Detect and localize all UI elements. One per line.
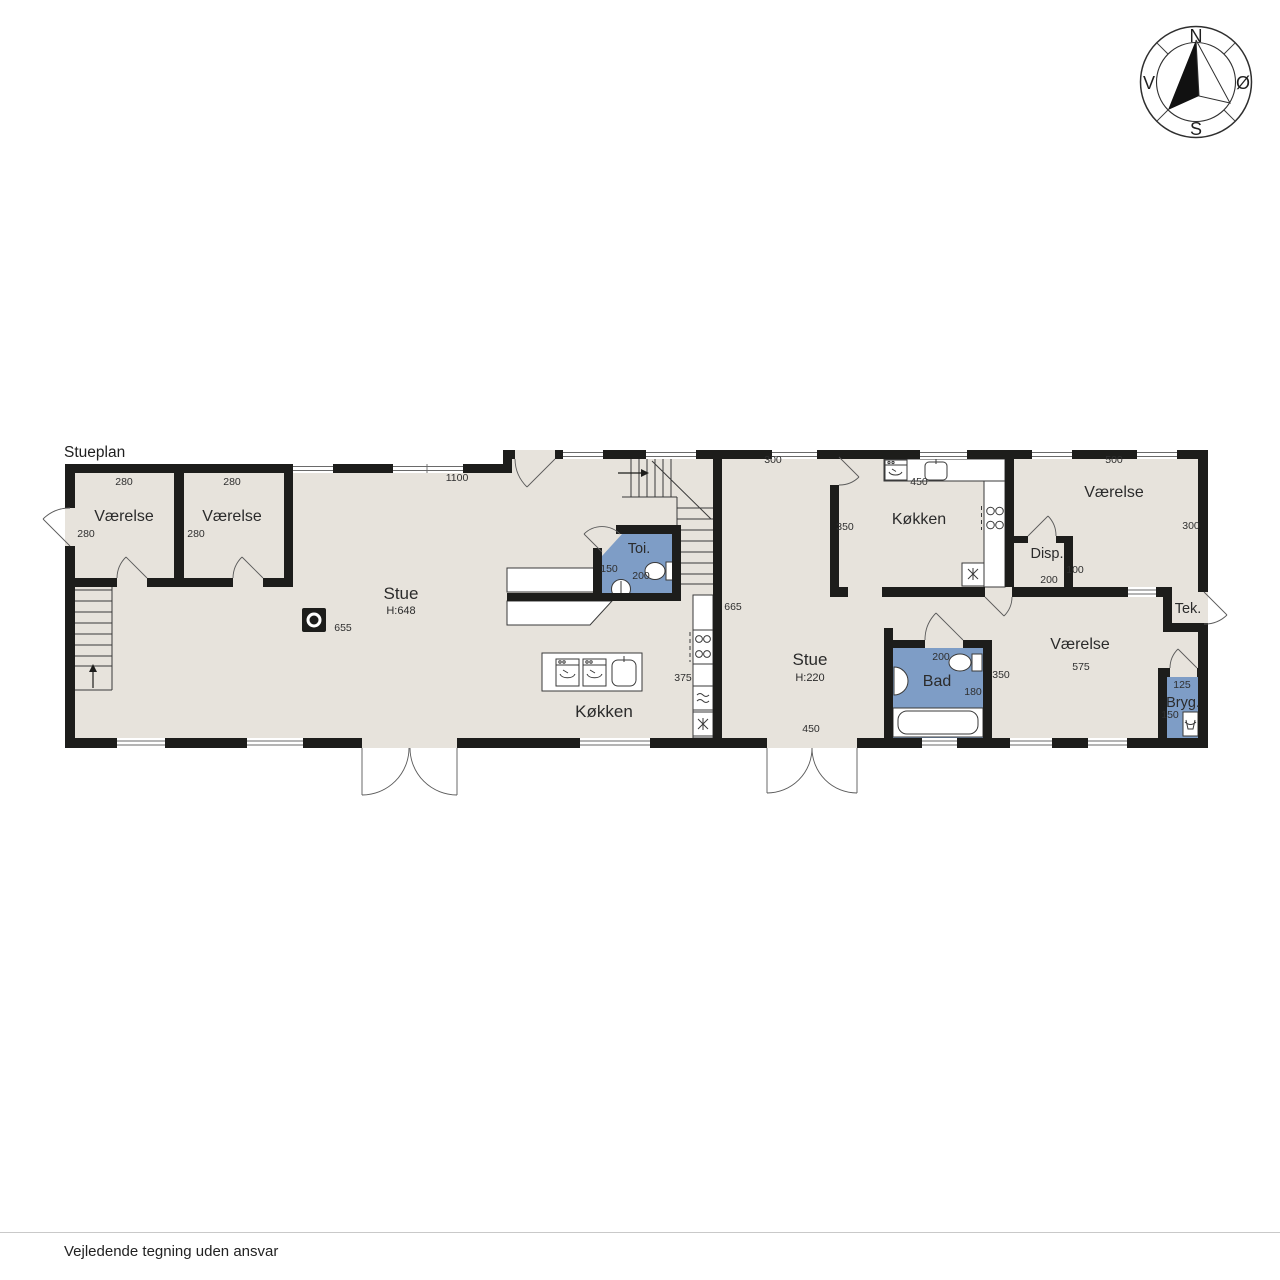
window [1137,450,1177,459]
room-label-vaerelse-2: Værelse [202,508,262,525]
compass-rose: N Ø S V [1141,26,1252,139]
cooktop-box [693,630,713,664]
dim-label: 575 [1072,661,1090,673]
dim-label: 300 [1182,520,1200,532]
window [646,450,696,459]
room-label-toi: Toi. [628,541,651,557]
window [920,450,967,459]
plan-title: Stueplan [64,444,125,461]
room-label-stue-2: Stue [793,650,828,669]
room-label-koekken-1: Køkken [575,702,633,721]
dishwasher-icon [885,460,907,480]
dim-label: 665 [724,601,742,613]
window [293,464,333,473]
sink-icon [925,462,947,480]
room-label-vaerelse-3: Værelse [1084,484,1144,501]
dim-label: 150 [600,563,618,575]
dim-label: 280 [223,476,241,488]
dishwasher-icon [556,659,579,686]
dim-label: 500 [1105,454,1123,466]
room-label-stue-1: Stue [384,584,419,603]
compass-west-label: V [1143,73,1155,93]
toilet-icon [972,654,982,671]
window [247,738,303,748]
dim-label: 280 [187,528,205,540]
compass-south-label: S [1190,119,1202,139]
wood-stove-icon [302,608,326,632]
window [1010,738,1052,748]
dim-label: 200 [1040,574,1058,586]
dim-label: 100 [1066,564,1084,576]
room-label-koekken-2: Køkken [892,511,946,528]
footer: Vejledende tegning uden ansvar [0,1233,1280,1261]
disclaimer-text: Vejledende tegning uden ansvar [64,1243,278,1260]
room-label-vaerelse-1: Værelse [94,508,154,525]
kitchen-counter [507,568,597,592]
dim-label: 450 [910,476,928,488]
toilet-icon [949,654,971,671]
room-label-bad: Bad [923,673,951,690]
room-label-tek: Tek. [1175,601,1202,617]
dim-label: 350 [992,669,1010,681]
kitchen2-counter-column [984,481,1005,587]
window [1032,450,1072,459]
dim-label: 180 [964,686,982,698]
dim-label: 350 [836,521,854,533]
double-door-swing [767,748,857,793]
oven-box [693,686,713,710]
room-label-disp: Disp. [1030,546,1063,562]
compass-east-label: Ø [1236,73,1250,93]
dim-label: 300 [764,454,782,466]
sink-icon [612,660,636,686]
floor-plan-canvas: N Ø S V Stueplan [0,0,1280,1280]
dim-label: 150 [1161,709,1179,721]
window [922,738,957,748]
floor-plan-page: N Ø S V Stueplan [0,0,1280,1280]
dim-label: 280 [115,476,133,488]
dim-label: 375 [674,672,692,684]
window [580,738,650,748]
ceiling-height-label: H:648 [386,605,415,617]
dim-label: 200 [632,570,650,582]
dishwasher-icon [583,659,606,686]
dim-label: 200 [932,651,950,663]
bathtub-icon [898,711,978,734]
window [1128,587,1156,597]
window [1088,738,1127,748]
ceiling-height-label: H:220 [795,672,824,684]
dim-label: 280 [77,528,95,540]
dim-label: 450 [802,723,820,735]
room-label-vaerelse-4: Værelse [1050,636,1110,653]
window [117,738,165,748]
dim-label: 125 [1173,679,1191,691]
compass-north-label: N [1190,26,1203,46]
compass-needle-light [1196,40,1230,103]
dim-label: 655 [334,622,352,634]
dim-label: 1100 [446,472,469,484]
window [563,450,603,459]
double-door-swing [362,748,457,795]
